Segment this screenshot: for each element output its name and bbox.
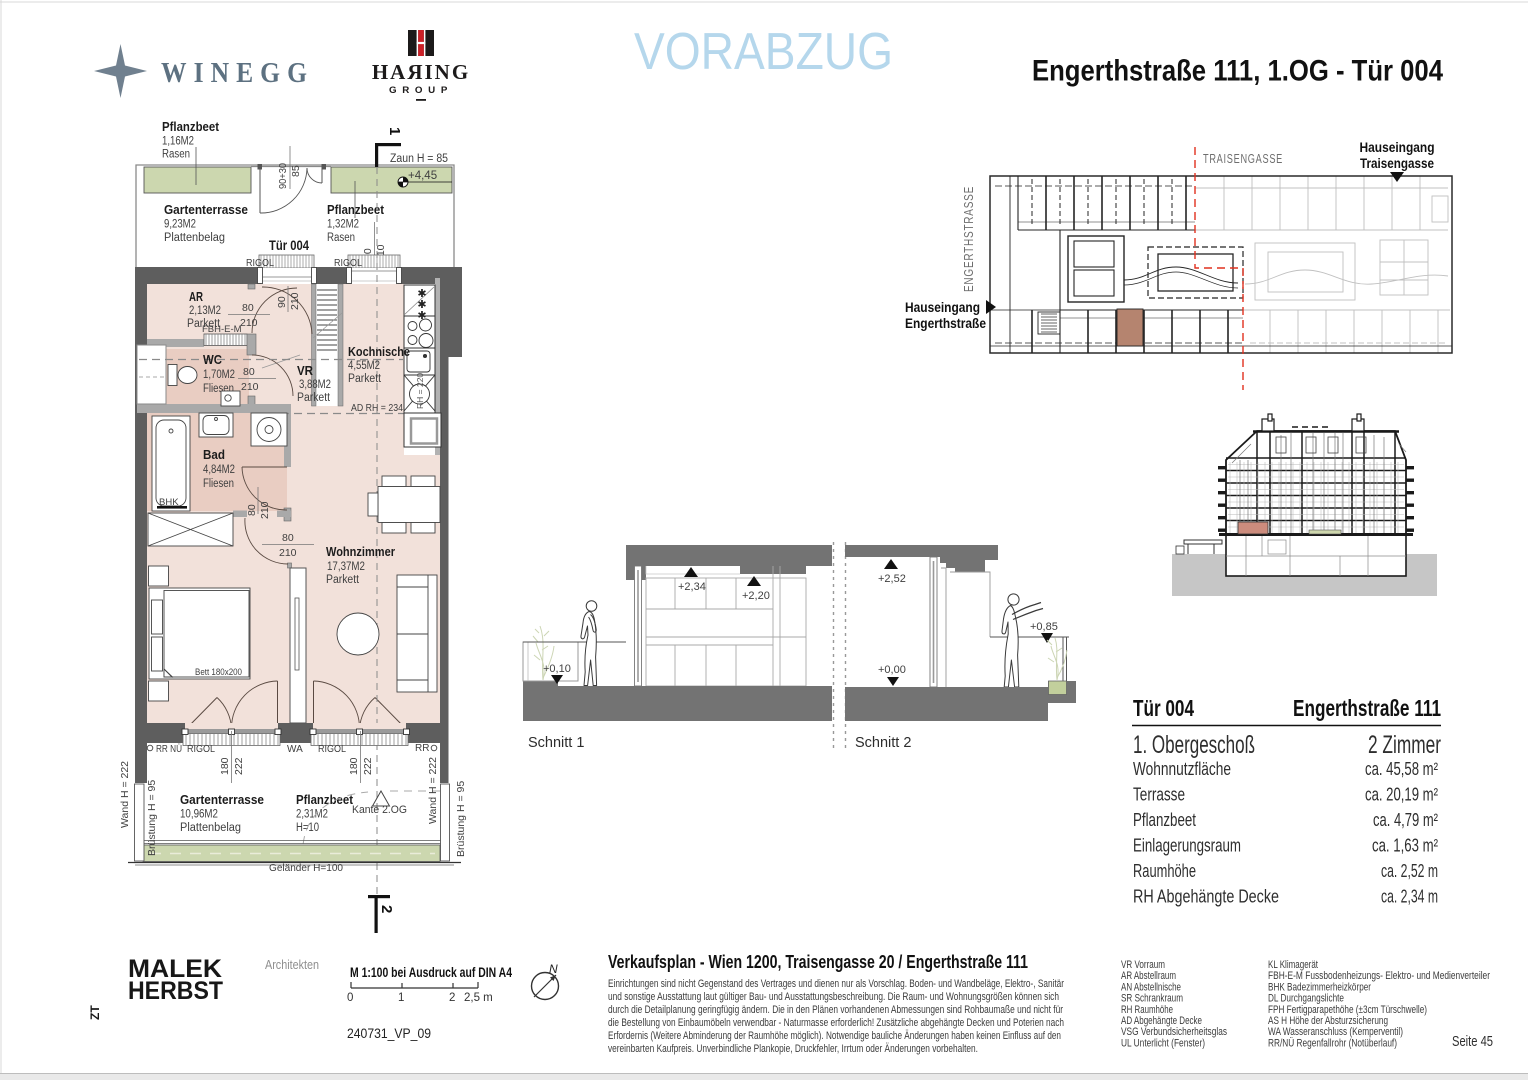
svg-text:Tür 004: Tür 004	[269, 238, 309, 253]
svg-text:+4,45: +4,45	[408, 170, 437, 182]
svg-text:RR: RR	[415, 743, 429, 754]
svg-text:222: 222	[362, 757, 374, 775]
svg-text:Seite 45: Seite 45	[1452, 1033, 1493, 1050]
svg-text:80: 80	[282, 532, 294, 544]
svg-text:durch die Detailplanung gering: durch die Detailplanung geringfügig ände…	[608, 1004, 1063, 1016]
svg-text:AR Abstellraum: AR Abstellraum	[1121, 970, 1176, 982]
svg-text:1,32M2: 1,32M2	[327, 219, 359, 231]
svg-text:Fliesen: Fliesen	[203, 478, 234, 490]
svg-text:Bad: Bad	[203, 447, 225, 462]
svg-text:Schnitt 1: Schnitt 1	[528, 735, 584, 751]
svg-text:HAЯING: HAЯING	[372, 60, 470, 84]
svg-text:Einrichtungen sind nicht Gegen: Einrichtungen sind nicht Gegenstand des …	[608, 978, 1064, 990]
svg-text:ca. 45,58 m²: ca. 45,58 m²	[1365, 759, 1438, 779]
svg-text:BHK Badezimmerheizkörper: BHK Badezimmerheizkörper	[1268, 981, 1371, 993]
svg-text:4,84M2: 4,84M2	[203, 464, 235, 476]
svg-text:210: 210	[259, 501, 271, 519]
svg-text:AN Abstellnische: AN Abstellnische	[1121, 981, 1181, 993]
svg-text:Parkett: Parkett	[326, 574, 360, 586]
svg-text:Rasen: Rasen	[162, 149, 190, 161]
svg-text:ZT: ZT	[88, 1005, 102, 1020]
svg-text:Parkett: Parkett	[297, 392, 331, 404]
svg-text:N: N	[549, 962, 558, 976]
svg-text:Parkett: Parkett	[348, 373, 382, 385]
svg-text:RH Raumhöhe: RH Raumhöhe	[1121, 1004, 1173, 1016]
svg-text:4,55M2: 4,55M2	[348, 360, 380, 372]
svg-text:Tür 004: Tür 004	[1133, 695, 1194, 721]
svg-text:ca. 4,79 m²: ca. 4,79 m²	[1373, 810, 1438, 830]
svg-text:2,31M2: 2,31M2	[296, 809, 328, 821]
svg-text:3,88M2: 3,88M2	[299, 379, 331, 391]
svg-text:UL Unterlicht (Fenster): UL Unterlicht (Fenster)	[1121, 1037, 1205, 1049]
svg-text:Hauseingang: Hauseingang	[905, 300, 980, 315]
svg-text:RH Abgehängte Decke: RH Abgehängte Decke	[1133, 887, 1279, 907]
svg-text:210: 210	[241, 381, 259, 393]
svg-text:FPH Fertigparapethöhe (±3cm Tü: FPH Fertigparapethöhe (±3cm Türschwelle)	[1268, 1004, 1427, 1016]
svg-text:10,96M2: 10,96M2	[180, 809, 218, 821]
svg-text:Engerthstraße: Engerthstraße	[905, 316, 986, 331]
svg-text:DL Durchgangslichte: DL Durchgangslichte	[1268, 993, 1344, 1005]
svg-text:RH = 220: RH = 220	[415, 373, 425, 409]
svg-text:2,13M2: 2,13M2	[189, 305, 221, 317]
svg-text:GROUP: GROUP	[389, 85, 453, 96]
svg-text:Pflanzbeet: Pflanzbeet	[1133, 810, 1196, 830]
svg-text:RIGOL: RIGOL	[246, 258, 274, 269]
svg-text:SR Schrankraum: SR Schrankraum	[1121, 993, 1183, 1005]
svg-text:222: 222	[233, 757, 245, 775]
svg-text:+2,52: +2,52	[878, 573, 906, 585]
svg-text:90: 90	[276, 296, 288, 308]
svg-text:VR: VR	[297, 363, 314, 378]
svg-text:1,70M2: 1,70M2	[203, 369, 235, 381]
svg-text:Engerthstraße 111, 1.OG - Tür: Engerthstraße 111, 1.OG - Tür 004	[1032, 55, 1443, 88]
svg-text:2 Zimmer: 2 Zimmer	[1368, 731, 1441, 759]
svg-text:AR: AR	[189, 289, 203, 304]
svg-text:Plattenbelag: Plattenbelag	[164, 232, 225, 244]
svg-text:Plattenbelag: Plattenbelag	[180, 822, 241, 834]
svg-text:TRAISENGASSE: TRAISENGASSE	[1203, 151, 1283, 166]
svg-text:Parkett: Parkett	[187, 318, 221, 330]
svg-text:Kante 2.OG: Kante 2.OG	[352, 804, 407, 816]
svg-text:M 1:100 bei Ausdruck auf DIN A: M 1:100 bei Ausdruck auf DIN A4	[350, 965, 512, 980]
svg-text:Wohnnutzfläche: Wohnnutzfläche	[1133, 759, 1231, 779]
svg-text:180: 180	[219, 757, 231, 775]
svg-text:Brüstung H = 95: Brüstung H = 95	[146, 780, 158, 856]
svg-text:VORABZUG: VORABZUG	[634, 23, 893, 81]
svg-text:210: 210	[279, 547, 297, 559]
svg-text:VR Vorraum: VR Vorraum	[1121, 959, 1165, 971]
svg-text:2,5 m: 2,5 m	[464, 992, 493, 1004]
svg-text:80: 80	[243, 366, 255, 378]
svg-text:VSG Verbundsicherheitsglas: VSG Verbundsicherheitsglas	[1121, 1026, 1227, 1038]
svg-text:1,16M2: 1,16M2	[162, 136, 194, 148]
svg-text:Kochnische: Kochnische	[348, 344, 410, 359]
svg-text:ca. 1,63 m²: ca. 1,63 m²	[1372, 836, 1438, 856]
svg-text:und sonstige Ausstattung laut: und sonstige Ausstattung laut gültiger B…	[608, 991, 1059, 1003]
svg-text:Wand H = 222: Wand H = 222	[119, 761, 131, 828]
svg-text:85: 85	[290, 165, 302, 177]
svg-text:2: 2	[378, 905, 395, 913]
svg-text:Gartenterrasse: Gartenterrasse	[164, 202, 248, 217]
svg-text:ca. 2,52 m: ca. 2,52 m	[1381, 861, 1438, 881]
svg-text:1. Obergeschoß: 1. Obergeschoß	[1133, 731, 1255, 759]
svg-text:WA Wasseranschluss (Kempervent: WA Wasseranschluss (Kemperventil)	[1268, 1026, 1403, 1038]
svg-text:Pflanzbeet: Pflanzbeet	[327, 202, 385, 217]
svg-text:die Bestellung von Einbaumöbel: die Bestellung von Einbaumöbeln verwendb…	[608, 1017, 1064, 1029]
svg-text:+0,10: +0,10	[543, 663, 571, 675]
svg-text:80: 80	[242, 302, 254, 314]
svg-text:Einlagerungsraum: Einlagerungsraum	[1133, 836, 1241, 856]
svg-text:Pflanzbeet: Pflanzbeet	[162, 119, 220, 134]
svg-text:Brüstung H = 95: Brüstung H = 95	[455, 781, 467, 857]
svg-text:Engerthstraße 111: Engerthstraße 111	[1293, 695, 1441, 721]
svg-text:WC: WC	[203, 352, 223, 367]
svg-text:9,23M2: 9,23M2	[164, 219, 196, 231]
svg-text:240731_VP_09: 240731_VP_09	[347, 1026, 431, 1041]
svg-text:+0,00: +0,00	[878, 664, 906, 676]
svg-text:ca. 20,19 m²: ca. 20,19 m²	[1365, 785, 1438, 805]
svg-text:RIGOL: RIGOL	[334, 258, 362, 269]
svg-text:RR NÜ: RR NÜ	[156, 743, 182, 755]
svg-text:FBH-E-M Fussbodenheizungs- Ele: FBH-E-M Fussbodenheizungs- Elektro- und …	[1268, 970, 1490, 982]
svg-text:Erfordernis (Weitere Abminderu: Erfordernis (Weitere Abminderung der Rau…	[608, 1030, 1061, 1042]
svg-text:RIGOL: RIGOL	[318, 744, 346, 755]
svg-text:Terrasse: Terrasse	[1133, 785, 1185, 805]
svg-text:HERBST: HERBST	[128, 977, 223, 1005]
svg-text:ca. 2,34 m: ca. 2,34 m	[1381, 887, 1438, 907]
svg-text:Architekten: Architekten	[265, 958, 319, 972]
svg-text:210: 210	[289, 292, 301, 310]
svg-text:Rasen: Rasen	[327, 232, 355, 244]
svg-text:Traisengasse: Traisengasse	[1360, 156, 1434, 171]
svg-text:RR/NÜ Regenfallrohr (Notüberla: RR/NÜ Regenfallrohr (Notüberlauf)	[1268, 1037, 1397, 1049]
svg-text:WA: WA	[287, 744, 303, 755]
svg-text:WINEGG: WINEGG	[161, 57, 314, 89]
svg-text:1: 1	[398, 992, 404, 1004]
svg-text:Wand H = 222: Wand H = 222	[427, 757, 439, 824]
svg-text:180: 180	[348, 757, 360, 775]
svg-text:AD RH = 234: AD RH = 234	[351, 402, 403, 414]
svg-text:RIGOL: RIGOL	[187, 744, 215, 755]
svg-text:Zaun H = 85: Zaun H = 85	[390, 153, 448, 165]
svg-text:AD Abgehängte Decke: AD Abgehängte Decke	[1121, 1015, 1202, 1027]
svg-text:Geländer H=100: Geländer H=100	[269, 862, 343, 874]
svg-text:Bett 180x200: Bett 180x200	[195, 667, 242, 678]
svg-text:ENGERTHSTRASSE: ENGERTHSTRASSE	[961, 186, 976, 292]
svg-text:2: 2	[449, 992, 455, 1004]
svg-text:80: 80	[246, 504, 258, 516]
svg-text:Raumhöhe: Raumhöhe	[1133, 861, 1196, 881]
svg-text:+2,34: +2,34	[678, 581, 706, 593]
svg-text:Wohnzimmer: Wohnzimmer	[326, 544, 395, 559]
svg-text:AS H Höhe der Absturzsicherung: AS H Höhe der Absturzsicherung	[1268, 1015, 1388, 1027]
svg-text:vereinbarten Kaufpreis. Unverb: vereinbarten Kaufpreis. Unverbindliche P…	[608, 1043, 978, 1055]
svg-text:+0,85: +0,85	[1030, 621, 1058, 633]
svg-text:210: 210	[240, 317, 258, 329]
svg-text:Hauseingang: Hauseingang	[1360, 140, 1435, 155]
svg-text:+2,20: +2,20	[742, 590, 770, 602]
svg-text:0: 0	[347, 992, 353, 1004]
svg-text:Pflanzbeet: Pflanzbeet	[296, 792, 354, 807]
svg-text:17,37M2: 17,37M2	[327, 561, 365, 573]
svg-text:90+30: 90+30	[277, 163, 289, 189]
svg-text:1: 1	[386, 127, 403, 135]
svg-text:KL Klimagerät: KL Klimagerät	[1268, 959, 1318, 971]
svg-text:Verkaufsplan - Wien 1200, Trai: Verkaufsplan - Wien 1200, Traisengasse 2…	[608, 952, 1028, 972]
svg-text:Gartenterrasse: Gartenterrasse	[180, 792, 264, 807]
svg-text:Schnitt 2: Schnitt 2	[855, 735, 911, 751]
